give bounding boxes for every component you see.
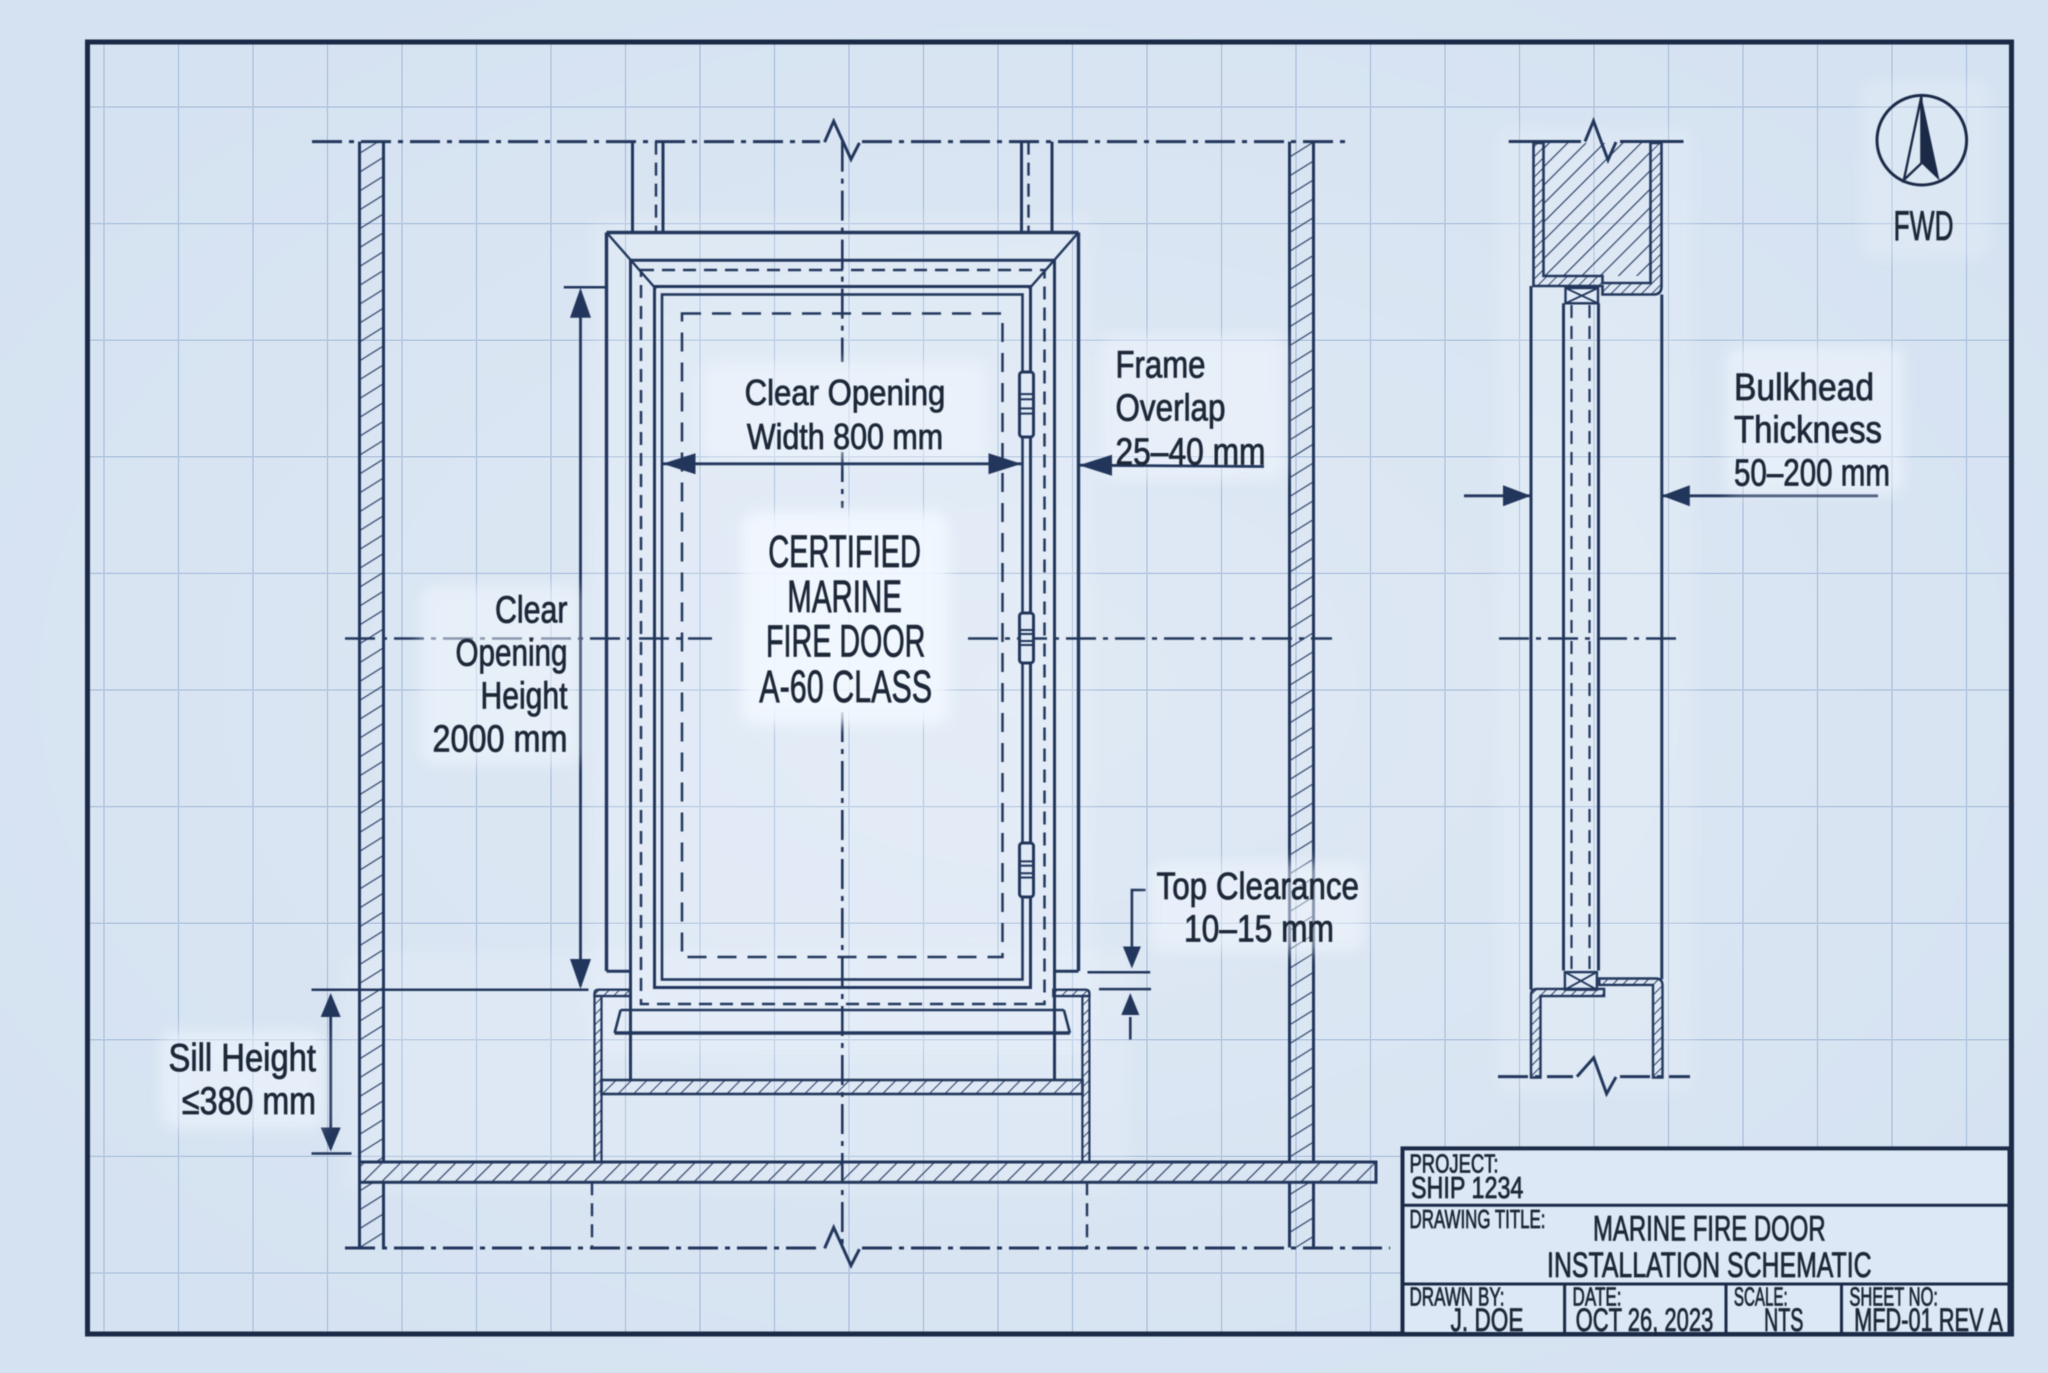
svg-text:INSTALLATION SCHEMATIC: INSTALLATION SCHEMATIC — [1547, 1246, 1872, 1285]
svg-text:Clear: Clear — [495, 590, 568, 632]
svg-text:10–15 mm: 10–15 mm — [1184, 909, 1334, 951]
svg-text:MARINE: MARINE — [787, 571, 902, 622]
svg-text:Width 800 mm: Width 800 mm — [747, 417, 943, 457]
svg-text:DRAWING TITLE:: DRAWING TITLE: — [1410, 1204, 1546, 1234]
svg-text:Height: Height — [481, 676, 568, 718]
svg-text:Thickness: Thickness — [1734, 410, 1882, 452]
svg-text:SHIP 1234: SHIP 1234 — [1411, 1171, 1523, 1205]
svg-text:50–200 mm: 50–200 mm — [1734, 453, 1890, 495]
svg-text:≤380 mm: ≤380 mm — [182, 1080, 316, 1123]
svg-text:Opening: Opening — [456, 633, 568, 675]
svg-text:25–40 mm: 25–40 mm — [1116, 432, 1266, 474]
svg-text:FIRE DOOR: FIRE DOOR — [766, 616, 925, 667]
svg-text:NTS: NTS — [1764, 1302, 1804, 1338]
svg-text:2000 mm: 2000 mm — [433, 719, 568, 761]
svg-text:A-60 CLASS: A-60 CLASS — [759, 661, 932, 712]
svg-text:OCT 26, 2023: OCT 26, 2023 — [1576, 1302, 1714, 1338]
svg-text:Bulkhead: Bulkhead — [1734, 367, 1874, 409]
svg-text:Top Clearance: Top Clearance — [1157, 866, 1360, 908]
svg-text:Clear Opening: Clear Opening — [745, 373, 946, 413]
svg-text:MARINE FIRE DOOR: MARINE FIRE DOOR — [1593, 1210, 1826, 1249]
svg-text:J. DOE: J. DOE — [1451, 1302, 1524, 1338]
svg-text:MFD-01 REV A: MFD-01 REV A — [1854, 1302, 2003, 1338]
svg-text:Overlap: Overlap — [1116, 388, 1226, 430]
svg-text:FWD: FWD — [1894, 202, 1954, 249]
svg-text:Frame: Frame — [1116, 345, 1206, 387]
svg-text:Sill Height: Sill Height — [169, 1037, 317, 1080]
svg-text:CERTIFIED: CERTIFIED — [768, 526, 921, 577]
